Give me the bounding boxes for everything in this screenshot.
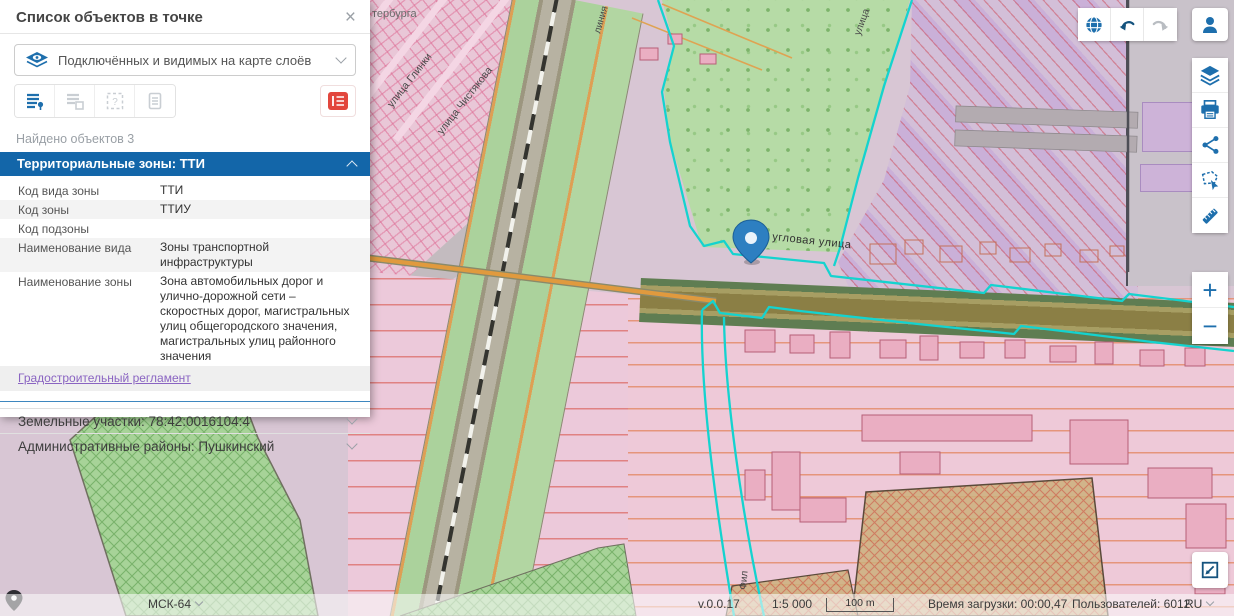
result-toolbar: ? [14, 84, 176, 118]
chevron-down-icon [195, 598, 203, 606]
svg-text:?: ? [112, 97, 118, 108]
row-label: Код подзоны [18, 221, 160, 236]
found-objects-text: Найдено объектов 3 [16, 132, 354, 146]
table-row: Наименование зоны Зона автомобильных дор… [0, 272, 370, 366]
zoom-controls: + − [1192, 272, 1228, 344]
section-territorial-zones[interactable]: Территориальные зоны: ТТИ [0, 152, 370, 176]
basemap-globe-button[interactable] [1078, 8, 1111, 41]
layers-button[interactable] [1192, 58, 1228, 93]
crs-selector[interactable]: МСК-64 [148, 597, 202, 611]
layers-icon [1199, 64, 1221, 86]
row-value: ТТИУ [160, 202, 360, 217]
row-value: ТТИ [160, 183, 360, 198]
layers-eye-icon [25, 51, 49, 69]
table-row: Код вида зоны ТТИ [0, 181, 370, 200]
document-list-button[interactable] [135, 85, 175, 117]
globe-icon [1084, 14, 1104, 36]
area-query-button[interactable]: ? [95, 85, 135, 117]
section-title: Территориальные зоны: ТТИ [17, 156, 205, 171]
row-value: Зоны транспортной инфраструктуры [160, 240, 360, 270]
row-value [160, 221, 360, 236]
plus-icon: + [1202, 280, 1217, 300]
language-selector[interactable]: RU [1185, 597, 1213, 611]
chevron-down-icon [346, 438, 357, 449]
user-button[interactable] [1192, 8, 1228, 41]
row-label: Наименование вида [18, 240, 160, 270]
scale-bar-label: 100 m [845, 597, 874, 609]
layer-filter-label: Подключённых и видимых на карте слоёв [58, 53, 328, 68]
redo-icon [1150, 14, 1171, 36]
crs-label: МСК-64 [148, 597, 191, 611]
zoom-in-button[interactable]: + [1192, 272, 1228, 308]
lasso-select-icon [1199, 169, 1221, 191]
row-value: Зона автомобильных дорог и улично-дорожн… [160, 274, 360, 364]
undo-button[interactable] [1111, 8, 1144, 41]
share-button[interactable] [1192, 128, 1228, 163]
section-admin-districts[interactable]: Административные районы: Пушкинский [0, 433, 370, 458]
table-row: Наименование вида Зоны транспортной инфр… [0, 238, 370, 272]
minus-icon: − [1202, 316, 1217, 336]
scale-bar: 100 m [826, 598, 894, 612]
ruler-icon [1199, 205, 1221, 227]
redo-button[interactable] [1144, 8, 1177, 41]
load-time-label: Время загрузки: 00:00,47 [928, 597, 1067, 611]
row-label: Код вида зоны [18, 183, 160, 198]
map-tools [1192, 58, 1228, 233]
chevron-up-icon [346, 160, 357, 171]
history-toolbar [1078, 8, 1177, 41]
user-icon [1200, 15, 1220, 35]
close-icon[interactable]: × [345, 11, 356, 25]
scale-label: 1:5 000 [772, 597, 812, 611]
chevron-down-icon [335, 52, 346, 63]
list-pin-icon [25, 91, 45, 111]
map-building [1140, 164, 1198, 192]
printer-icon [1199, 99, 1221, 121]
users-count-label: Пользователей: 6012 [1072, 597, 1190, 611]
report-icon [327, 90, 349, 112]
panel-title: Список объектов в точке [16, 9, 203, 26]
undo-icon [1117, 14, 1137, 36]
map-field-striped-south [628, 298, 1234, 616]
zoom-out-button[interactable]: − [1192, 308, 1228, 344]
table-row: Код подзоны [0, 219, 370, 238]
measure-button[interactable] [1192, 198, 1228, 233]
print-button[interactable] [1192, 93, 1228, 128]
regulation-link-row: Градостроительный регламент [0, 366, 370, 391]
list-box-icon [65, 91, 85, 111]
share-icon [1200, 135, 1220, 155]
language-label: RU [1185, 597, 1202, 611]
extent-button[interactable] [1192, 552, 1228, 588]
list-at-point-button[interactable] [15, 85, 55, 117]
layer-filter-select[interactable]: Подключённых и видимых на карте слоёв [14, 44, 356, 76]
report-button[interactable] [320, 85, 356, 117]
table-row: Код зоны ТТИУ [0, 200, 370, 219]
dashed-box-question-icon: ? [105, 91, 125, 111]
row-label: Код зоны [18, 202, 160, 217]
resize-arrow-icon [1200, 560, 1220, 580]
status-bar: МСК-64 v.0.0.17 1:5 000 100 m Время загр… [0, 594, 1234, 616]
attribute-table: Код вида зоны ТТИ Код зоны ТТИУ Код подз… [0, 181, 370, 391]
document-icon [145, 91, 165, 111]
regulation-link[interactable]: Градостроительный регламент [18, 371, 191, 385]
objects-panel: Список объектов в точке × Подключённых и… [0, 0, 370, 417]
chevron-down-icon [1206, 598, 1214, 606]
select-area-button[interactable] [1192, 163, 1228, 198]
row-label: Наименование зоны [18, 274, 160, 364]
section-land-parcels[interactable]: Земельные участки: 78:42:0016104:4 [0, 408, 370, 433]
chevron-down-icon [346, 413, 357, 424]
section-title: Административные районы: Пушкинский [18, 439, 274, 454]
section-title: Земельные участки: 78:42:0016104:4 [18, 414, 250, 429]
list-in-area-button[interactable] [55, 85, 95, 117]
version-label: v.0.0.17 [698, 597, 740, 611]
